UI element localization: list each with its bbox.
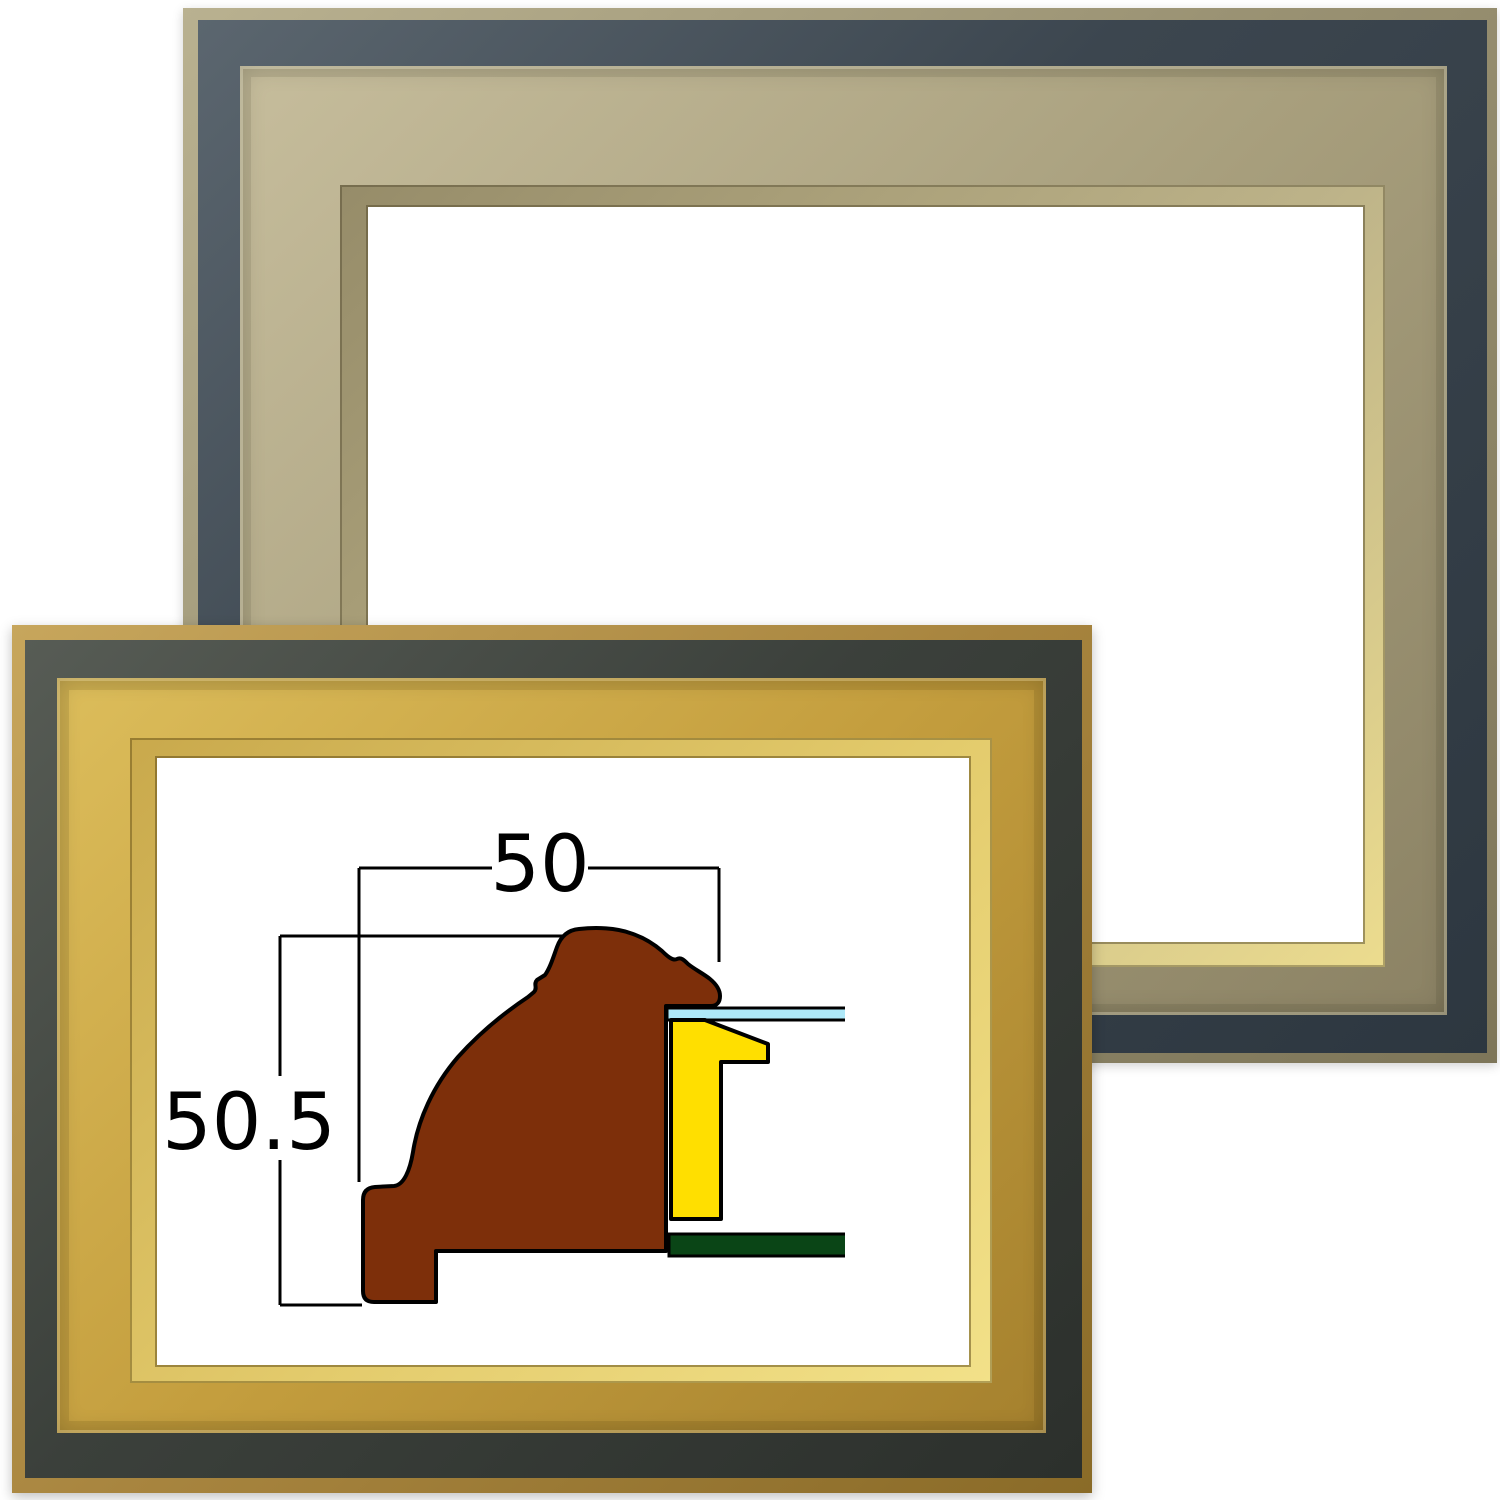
front-frame-gold-molding <box>57 678 1046 1433</box>
front-frame-opening <box>157 758 969 1365</box>
product-photo: 50 50.5 <box>0 0 1500 1500</box>
front-frame-inner-lip <box>130 738 992 1383</box>
front-frame-dark-band <box>25 640 1082 1478</box>
front-frame <box>12 625 1092 1493</box>
